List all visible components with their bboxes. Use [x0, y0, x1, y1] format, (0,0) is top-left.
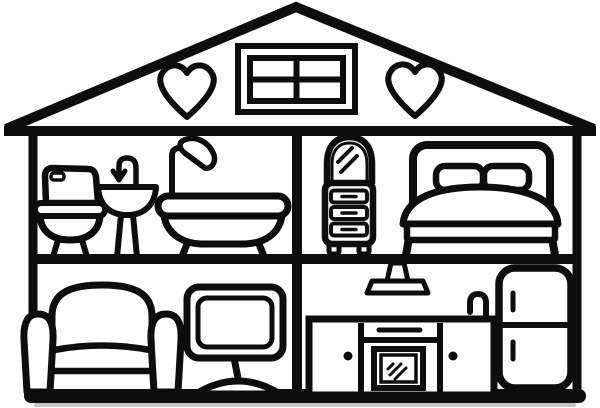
- pedestal-sink: [98, 158, 156, 257]
- sink-basin: [98, 187, 156, 215]
- dollhouse-illustration: [0, 0, 600, 408]
- armchair-back: [52, 285, 152, 352]
- cabinet-knob-right: [449, 352, 458, 361]
- room-living-room: [24, 285, 283, 394]
- bathtub: [158, 138, 288, 259]
- heart-right-icon: [388, 64, 441, 116]
- pendant-lamp: [367, 263, 428, 293]
- refrigerator: [499, 268, 571, 388]
- tv-stand-base: [196, 381, 280, 394]
- attic: [160, 46, 441, 117]
- lamp-shade: [367, 281, 428, 293]
- room-kitchen: [309, 263, 571, 395]
- armchair: [24, 285, 181, 392]
- tv-screen: [198, 298, 272, 347]
- bed-blanket: [403, 187, 558, 224]
- dollhouse-svg: [0, 0, 600, 408]
- sink-pedestal: [117, 215, 137, 257]
- toilet-bowl: [40, 216, 100, 240]
- heart-left-icon: [160, 65, 213, 117]
- bed: [403, 145, 558, 255]
- toilet: [35, 168, 105, 257]
- room-bedroom: [325, 137, 558, 255]
- armchair-arm-right: [151, 314, 181, 392]
- cabinet-knob-left: [344, 352, 353, 361]
- kitchen-counter: [309, 319, 494, 395]
- shower-pipe: [172, 148, 184, 198]
- attic-window: [238, 46, 355, 112]
- room-bathroom: [35, 138, 288, 259]
- dresser-with-mirror: [325, 137, 373, 254]
- bathtub-body: [164, 216, 282, 244]
- toilet-seat: [35, 203, 105, 216]
- bed-frame-band: [407, 224, 555, 240]
- bathtub-rim: [158, 196, 288, 216]
- lamp-stem: [387, 263, 408, 281]
- television: [187, 287, 283, 394]
- shower-head: [180, 138, 214, 168]
- armchair-arm-left: [24, 314, 53, 392]
